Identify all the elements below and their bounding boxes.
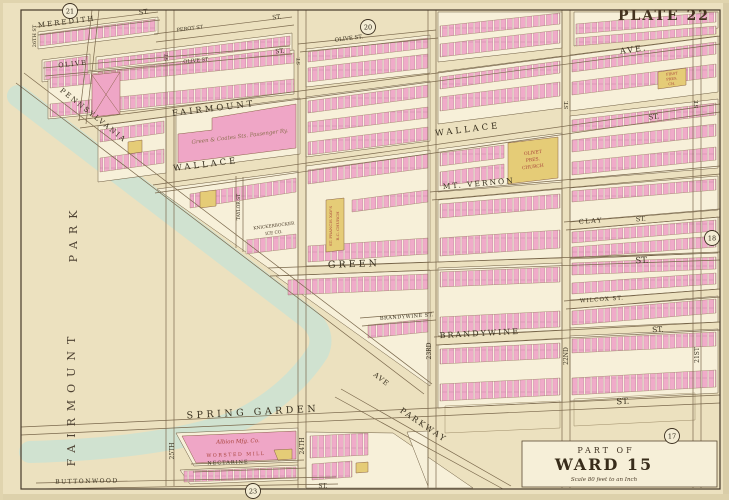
rowhouse-strip (310, 433, 368, 458)
street-label-taylor-st: TAYLOR ST (236, 194, 242, 220)
plate-ref-circle-23: 23 (246, 484, 261, 499)
street-label-st: ST. (564, 101, 570, 110)
plate-ref-number: 17 (668, 432, 676, 440)
atlas-map: MEREDITHST.PEROT STST.OLIVEOLIVE STST.OL… (0, 0, 729, 500)
street-label-st: ST. (694, 100, 700, 109)
paper-edge-top (0, 0, 729, 3)
street-label-green: GREEN (328, 258, 380, 271)
street-label-22nd: 22ND (563, 347, 570, 365)
street-label-24th: 24TH (299, 438, 306, 455)
cartouche-part-of: PART OF (577, 446, 634, 455)
street-label-st: ST. (275, 48, 285, 56)
street-label-st: ST. (648, 112, 660, 121)
street-label-st: ST. (616, 397, 629, 408)
plate-ref-circle-18: 18 (705, 231, 720, 246)
park-label-fairmount: FAIRMOUNT (65, 330, 78, 467)
plate-ref-number: 21 (66, 7, 74, 15)
street-label-21st: 21ST (694, 347, 701, 363)
street-label-st: ST. (164, 53, 170, 61)
street-label-st: ST. (296, 57, 302, 65)
street-label-st: ST. (272, 13, 282, 21)
ward-cartouche: PART OF WARD 15 Scale 80 feet to an Inch (522, 441, 717, 487)
paper-edge-left (0, 0, 3, 500)
building-label-st-francis-xav-s: ST. FRANCIS XAV'S (328, 206, 333, 247)
building-label-ch: CH. (668, 82, 675, 87)
street-label-buttonwood: BUTTONWOOD (55, 477, 119, 485)
building (356, 462, 368, 473)
street-label-25th: 25TH (169, 443, 176, 460)
cartouche-scale: Scale 80 feet to an Inch (571, 477, 638, 483)
plate-ref-circle-17: 17 (665, 429, 680, 444)
plate-ref-number: 20 (364, 23, 372, 31)
street-label-st: ST. (652, 325, 664, 335)
paper-edge-bottom (0, 494, 729, 500)
plate-ref-number: 23 (249, 487, 257, 495)
street-label-clay: CLAY (579, 216, 604, 226)
plate-ref-circle-21: 21 (63, 4, 78, 19)
street-label-26th-st: 26TH ST (32, 24, 38, 47)
street-label-st: ST. (635, 256, 648, 266)
street-label-st: ST. (138, 7, 149, 16)
park-label-park: PARK (67, 204, 80, 263)
plate-ref-circle-20: 20 (361, 20, 376, 35)
building (200, 190, 216, 208)
building-label-r-c-church: R.C. CHURCH (335, 211, 340, 241)
street-label-23rd: 23RD (426, 342, 433, 359)
paper-edge-right (723, 0, 729, 500)
building (128, 140, 142, 154)
street-label-st: ST. (636, 215, 646, 224)
atlas-sheet: MEREDITHST.PEROT STST.OLIVEOLIVE STST.OL… (0, 0, 729, 500)
plate-title: PLATE 22 (618, 8, 710, 24)
cartouche-ward: WARD 15 (554, 455, 653, 474)
plate-ref-number: 18 (708, 234, 716, 242)
